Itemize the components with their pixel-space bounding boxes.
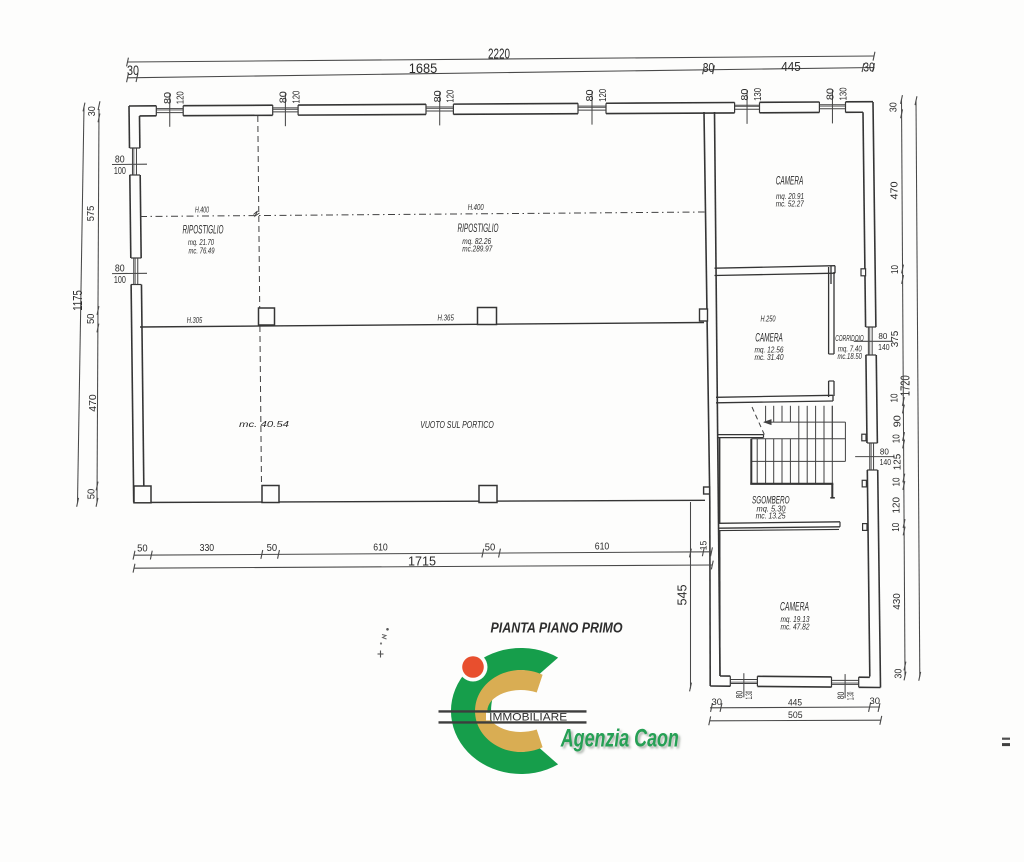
svg-text:15: 15: [698, 541, 708, 551]
svg-text:mc. 52.27: mc. 52.27: [776, 198, 804, 208]
svg-text:50: 50: [485, 542, 496, 554]
svg-text:2220: 2220: [488, 46, 510, 63]
svg-text:50: 50: [86, 313, 97, 324]
svg-text:mc. 31.40: mc. 31.40: [755, 352, 784, 362]
svg-text:80: 80: [880, 446, 889, 456]
svg-text:VUOTO SUL PORTICO: VUOTO SUL PORTICO: [420, 420, 494, 431]
svg-text:1175: 1175: [70, 290, 85, 311]
svg-text:470: 470: [888, 181, 900, 199]
svg-text:50: 50: [137, 543, 148, 555]
svg-text:130: 130: [837, 87, 849, 100]
svg-text:375: 375: [889, 331, 901, 348]
svg-text:CAMERA: CAMERA: [755, 333, 783, 345]
svg-text:RIPOSTIGLIO: RIPOSTIGLIO: [458, 223, 499, 235]
svg-text:100: 100: [114, 165, 126, 177]
svg-text:470: 470: [87, 394, 99, 412]
svg-text:445: 445: [788, 698, 802, 709]
svg-text:80: 80: [584, 89, 596, 101]
svg-text:575: 575: [86, 205, 97, 221]
svg-text:1715: 1715: [408, 554, 436, 569]
svg-text:50: 50: [87, 488, 98, 499]
svg-text:120: 120: [175, 91, 187, 104]
svg-text:PIANTA PIANO PRIMO: PIANTA PIANO PRIMO: [491, 620, 623, 637]
svg-text:80: 80: [278, 91, 290, 103]
svg-text:1720: 1720: [899, 375, 913, 396]
svg-text:545: 545: [676, 584, 690, 605]
svg-text:1.30: 1.30: [845, 692, 855, 701]
svg-text:1685: 1685: [409, 60, 438, 76]
svg-text:H.365: H.365: [438, 313, 455, 322]
svg-text:80: 80: [162, 92, 174, 104]
svg-text:30: 30: [892, 668, 904, 678]
svg-text:10: 10: [889, 265, 901, 274]
svg-text:30: 30: [712, 697, 723, 708]
svg-text:CAMERA: CAMERA: [776, 175, 804, 187]
svg-text:mc. 47.82: mc. 47.82: [781, 622, 810, 632]
svg-text:10: 10: [890, 477, 902, 486]
svg-text:1.30: 1.30: [744, 691, 754, 700]
svg-text:Agenzia Caon: Agenzia Caon: [560, 725, 679, 753]
svg-text:50: 50: [267, 542, 278, 554]
svg-text:H.250: H.250: [761, 314, 776, 323]
svg-text:80: 80: [432, 90, 444, 102]
svg-text:140: 140: [880, 457, 892, 467]
svg-text:mc. 76.49: mc. 76.49: [189, 245, 215, 255]
svg-text:30: 30: [870, 696, 881, 707]
svg-text:125: 125: [891, 454, 903, 471]
svg-text:445: 445: [781, 59, 801, 74]
svg-text:80: 80: [825, 88, 837, 100]
svg-text:505: 505: [788, 710, 803, 721]
svg-text:H.305: H.305: [187, 316, 203, 325]
svg-text:610: 610: [373, 541, 388, 553]
svg-text:80: 80: [836, 692, 846, 700]
svg-text:80: 80: [735, 691, 745, 699]
svg-text:H.400: H.400: [468, 203, 484, 212]
svg-text:120: 120: [290, 90, 302, 103]
svg-text:mc. 13.25: mc. 13.25: [756, 511, 786, 521]
svg-text:30: 30: [127, 62, 139, 78]
svg-text:30: 30: [887, 102, 899, 112]
svg-text:H.400: H.400: [195, 205, 209, 214]
svg-text:10: 10: [890, 523, 902, 532]
svg-text:80: 80: [115, 262, 125, 274]
svg-text:CORRIDOIO: CORRIDOIO: [835, 333, 864, 343]
svg-text:330: 330: [200, 542, 215, 554]
svg-text:mc. 40.54: mc. 40.54: [239, 419, 289, 429]
svg-text:mc.289.97: mc.289.97: [462, 244, 492, 254]
svg-text:80: 80: [739, 88, 751, 100]
svg-text:130: 130: [752, 88, 764, 101]
svg-text:430: 430: [891, 593, 903, 610]
svg-text:10: 10: [888, 393, 900, 402]
svg-text:10: 10: [890, 434, 902, 443]
svg-text:RIPOSTIGLIO: RIPOSTIGLIO: [183, 224, 224, 236]
svg-text:610: 610: [595, 540, 610, 552]
svg-text:120: 120: [597, 89, 609, 102]
svg-text:mc.18.50: mc.18.50: [837, 351, 862, 361]
svg-text:100: 100: [114, 274, 126, 286]
svg-text:90: 90: [891, 415, 903, 427]
svg-text:120: 120: [445, 90, 457, 103]
svg-text:80: 80: [115, 153, 125, 165]
svg-text:80: 80: [878, 331, 887, 341]
svg-text:120: 120: [890, 497, 902, 514]
svg-text:30: 30: [863, 60, 875, 75]
svg-text:CAMERA: CAMERA: [780, 601, 809, 613]
svg-text:30: 30: [87, 106, 98, 116]
svg-text:IMMOBILIARE: IMMOBILIARE: [489, 711, 567, 723]
svg-text:30: 30: [703, 60, 715, 75]
